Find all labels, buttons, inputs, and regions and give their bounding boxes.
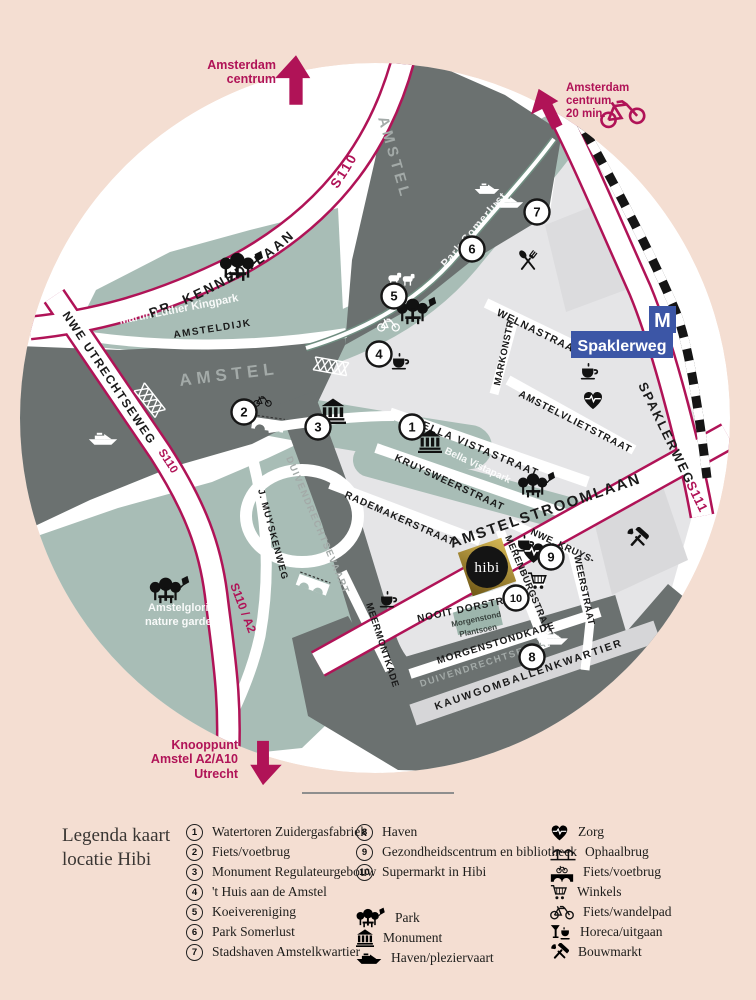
legend-symbol-horeca: Horeca/uitgaan [550, 922, 671, 942]
legend-symbol-fietsbrug: Fiets/voetbrug [550, 862, 671, 882]
svg-text:5: 5 [390, 289, 397, 304]
annotation-amsterdam-centrum-bike: Amsterdam centrum 20 min. [566, 82, 658, 122]
legend-number-badge: 7 [186, 944, 203, 961]
legend-number-badge: 9 [356, 844, 373, 861]
legend-symbol-fietspad: Fiets/wandelpad [550, 902, 671, 922]
legend-number-badge: 4 [186, 884, 203, 901]
legend-item-8: 8Haven [356, 822, 577, 842]
legend-symbol-zorg: Zorg [550, 822, 671, 842]
boat-icon [357, 953, 382, 963]
svg-text:6: 6 [468, 242, 475, 257]
park-icon [357, 907, 386, 927]
legend-item-10: 10Supermarkt in Hibi [356, 862, 577, 882]
legend-symbol-monument: Monument [356, 928, 577, 948]
legend-column-1: 1Watertoren Zuidergasfabriek 2Fiets/voet… [186, 822, 376, 962]
label-amstelglorie-1: Amstelglorie [148, 602, 215, 614]
legend-item-5: 5Koeivereniging [186, 902, 376, 922]
svg-text:10: 10 [510, 593, 522, 605]
svg-text:3: 3 [314, 420, 321, 435]
legend-item-6: 6Park Somerlust [186, 922, 376, 942]
svg-text:8: 8 [528, 650, 535, 665]
marker-5: 5 [382, 284, 407, 309]
legend-symbol-ophaalbrug: Ophaalbrug [550, 842, 671, 862]
horeca-icon [551, 925, 570, 939]
ophaalbrug-icon [550, 849, 575, 859]
zorg-icon [552, 825, 568, 840]
legend-item-3: 3Monument Regulateurgebouw [186, 862, 376, 882]
annotation-knooppunt: Knooppunt Amstel A2/A10 Utrecht [130, 738, 238, 781]
legend-number-badge: 3 [186, 864, 203, 881]
legend-number-badge: 5 [186, 904, 203, 921]
legend-item-9: 9Gezondheidscentrum en bibliotheek [356, 842, 577, 862]
legend-item-2: 2Fiets/voetbrug [186, 842, 376, 862]
legend-number-badge: 1 [186, 824, 203, 841]
winkels-icon [551, 886, 566, 900]
marker-4: 4 [367, 342, 392, 367]
legend-symbol-park: Park [356, 908, 577, 928]
divider-line [302, 792, 454, 794]
fietspad-icon [551, 906, 573, 918]
legend-number-badge: 10 [356, 864, 373, 881]
marker-7: 7 [525, 200, 550, 225]
legend-item-7: 7Stadshaven Amstelkwartier [186, 942, 376, 962]
marker-3: 3 [306, 415, 331, 440]
hibi-wordmark: hibi [474, 560, 499, 576]
bouwmarkt-icon [550, 943, 569, 962]
metro-station-label: Spaklerweg [578, 338, 667, 355]
metro-icon: M [654, 310, 671, 332]
legend-title: Legenda kaart locatie Hibi [62, 824, 170, 872]
marker-8: 8 [520, 645, 545, 670]
legend-column-2: 8Haven 9Gezondheidscentrum en bibliothee… [356, 822, 577, 968]
marker-2: 2 [232, 400, 257, 425]
legend-item-4: 4't Huis aan de Amstel [186, 882, 376, 902]
monument-icon [356, 929, 374, 947]
legend-number-badge: 2 [186, 844, 203, 861]
svg-text:4: 4 [375, 347, 383, 362]
legend-symbol-winkels: Winkels [550, 882, 671, 902]
svg-text:2: 2 [240, 405, 247, 420]
legend-number-badge: 8 [356, 824, 373, 841]
map-poster: PR. KENNEDYLAAN S110 Park Somerlust NWE … [0, 0, 756, 1000]
fietsbrug-icon [551, 865, 573, 881]
marker-6: 6 [460, 237, 485, 262]
marker-1: 1 [400, 415, 425, 440]
legend-symbol-bouwmarkt: Bouwmarkt [550, 942, 671, 962]
legend-item-1: 1Watertoren Zuidergasfabriek [186, 822, 376, 842]
svg-text:7: 7 [533, 205, 540, 220]
svg-text:1: 1 [408, 420, 415, 435]
marker-10: 10 [504, 586, 529, 611]
annotation-amsterdam-centrum: Amsterdam centrum [168, 58, 276, 87]
label-amstelglorie-2: nature garden [145, 616, 219, 628]
map-circle: PR. KENNEDYLAAN S110 Park Somerlust NWE … [18, 40, 730, 773]
legend-column-3: Zorg Ophaalbrug Fiets/voetbrug Winkels F… [550, 822, 671, 962]
marker-9: 9 [539, 545, 564, 570]
svg-text:9: 9 [547, 550, 554, 565]
legend-number-badge: 6 [186, 924, 203, 941]
legend-symbol-haven: Haven/pleziervaart [356, 948, 577, 968]
